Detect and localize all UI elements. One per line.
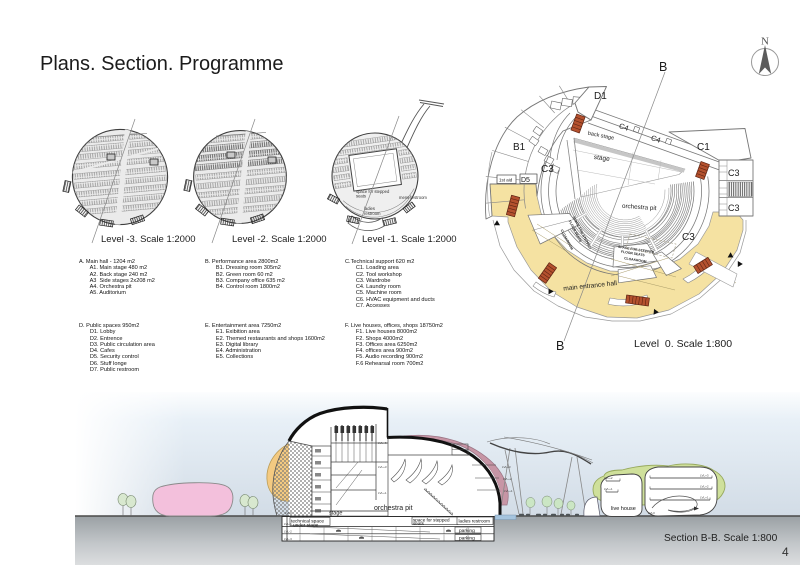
svg-text:orchestra pit: orchestra pit — [374, 505, 413, 512]
svg-text:D1: D1 — [594, 91, 607, 102]
svg-text:LVL+3: LVL+3 — [378, 465, 387, 469]
svg-text:C3: C3 — [728, 168, 740, 178]
svg-text:C1: C1 — [697, 142, 710, 153]
svg-text:seats: seats — [356, 194, 366, 199]
svg-text:LVL+2: LVL+2 — [604, 476, 613, 480]
svg-text:LVL+2: LVL+2 — [503, 477, 512, 481]
svg-text:N: N — [761, 36, 769, 48]
svg-text:seats: seats — [413, 521, 425, 526]
svg-text:LVL0: LVL0 — [648, 511, 655, 515]
svg-text:C4: C4 — [650, 133, 662, 145]
svg-text:mens restroom: mens restroom — [399, 195, 427, 200]
svg-text:D5: D5 — [521, 177, 530, 184]
svg-text:C4: C4 — [618, 121, 630, 133]
svg-text:LVL-3: LVL-3 — [284, 537, 292, 541]
svg-text:LVL+3: LVL+3 — [700, 474, 709, 478]
svg-text:LVL+3: LVL+3 — [502, 465, 511, 469]
svg-text:C3: C3 — [728, 203, 740, 213]
svg-text:C3: C3 — [682, 232, 695, 243]
svg-text:parking: parking — [459, 535, 475, 541]
svg-text:live house: live house — [611, 506, 636, 512]
svg-text:orchestra pit: orchestra pit — [622, 203, 657, 212]
svg-text:1st aid: 1st aid — [499, 178, 513, 183]
svg-text:LVL+1: LVL+1 — [378, 491, 387, 495]
svg-text:stage: stage — [329, 511, 342, 517]
svg-text:LVL+2: LVL+2 — [700, 485, 709, 489]
svg-text:restroom: restroom — [364, 211, 381, 216]
svg-text:LVL+1: LVL+1 — [700, 496, 709, 500]
svg-text:LVL+1: LVL+1 — [604, 487, 613, 491]
svg-text:back stage: back stage — [587, 131, 614, 142]
svg-text:LVL+5: LVL+5 — [378, 441, 387, 445]
svg-text:parking: parking — [459, 528, 475, 534]
svg-text:LVL0: LVL0 — [285, 511, 292, 515]
svg-text:C3: C3 — [541, 164, 554, 175]
svg-text:LVL-1: LVL-1 — [284, 522, 292, 526]
svg-text:LVL-2: LVL-2 — [284, 530, 292, 534]
svg-text:LVL+1: LVL+1 — [504, 489, 513, 493]
svg-text:B1: B1 — [513, 142, 526, 153]
svg-text:ladies restroom: ladies restroom — [459, 519, 491, 524]
svg-text:under stage: under stage — [293, 523, 319, 529]
